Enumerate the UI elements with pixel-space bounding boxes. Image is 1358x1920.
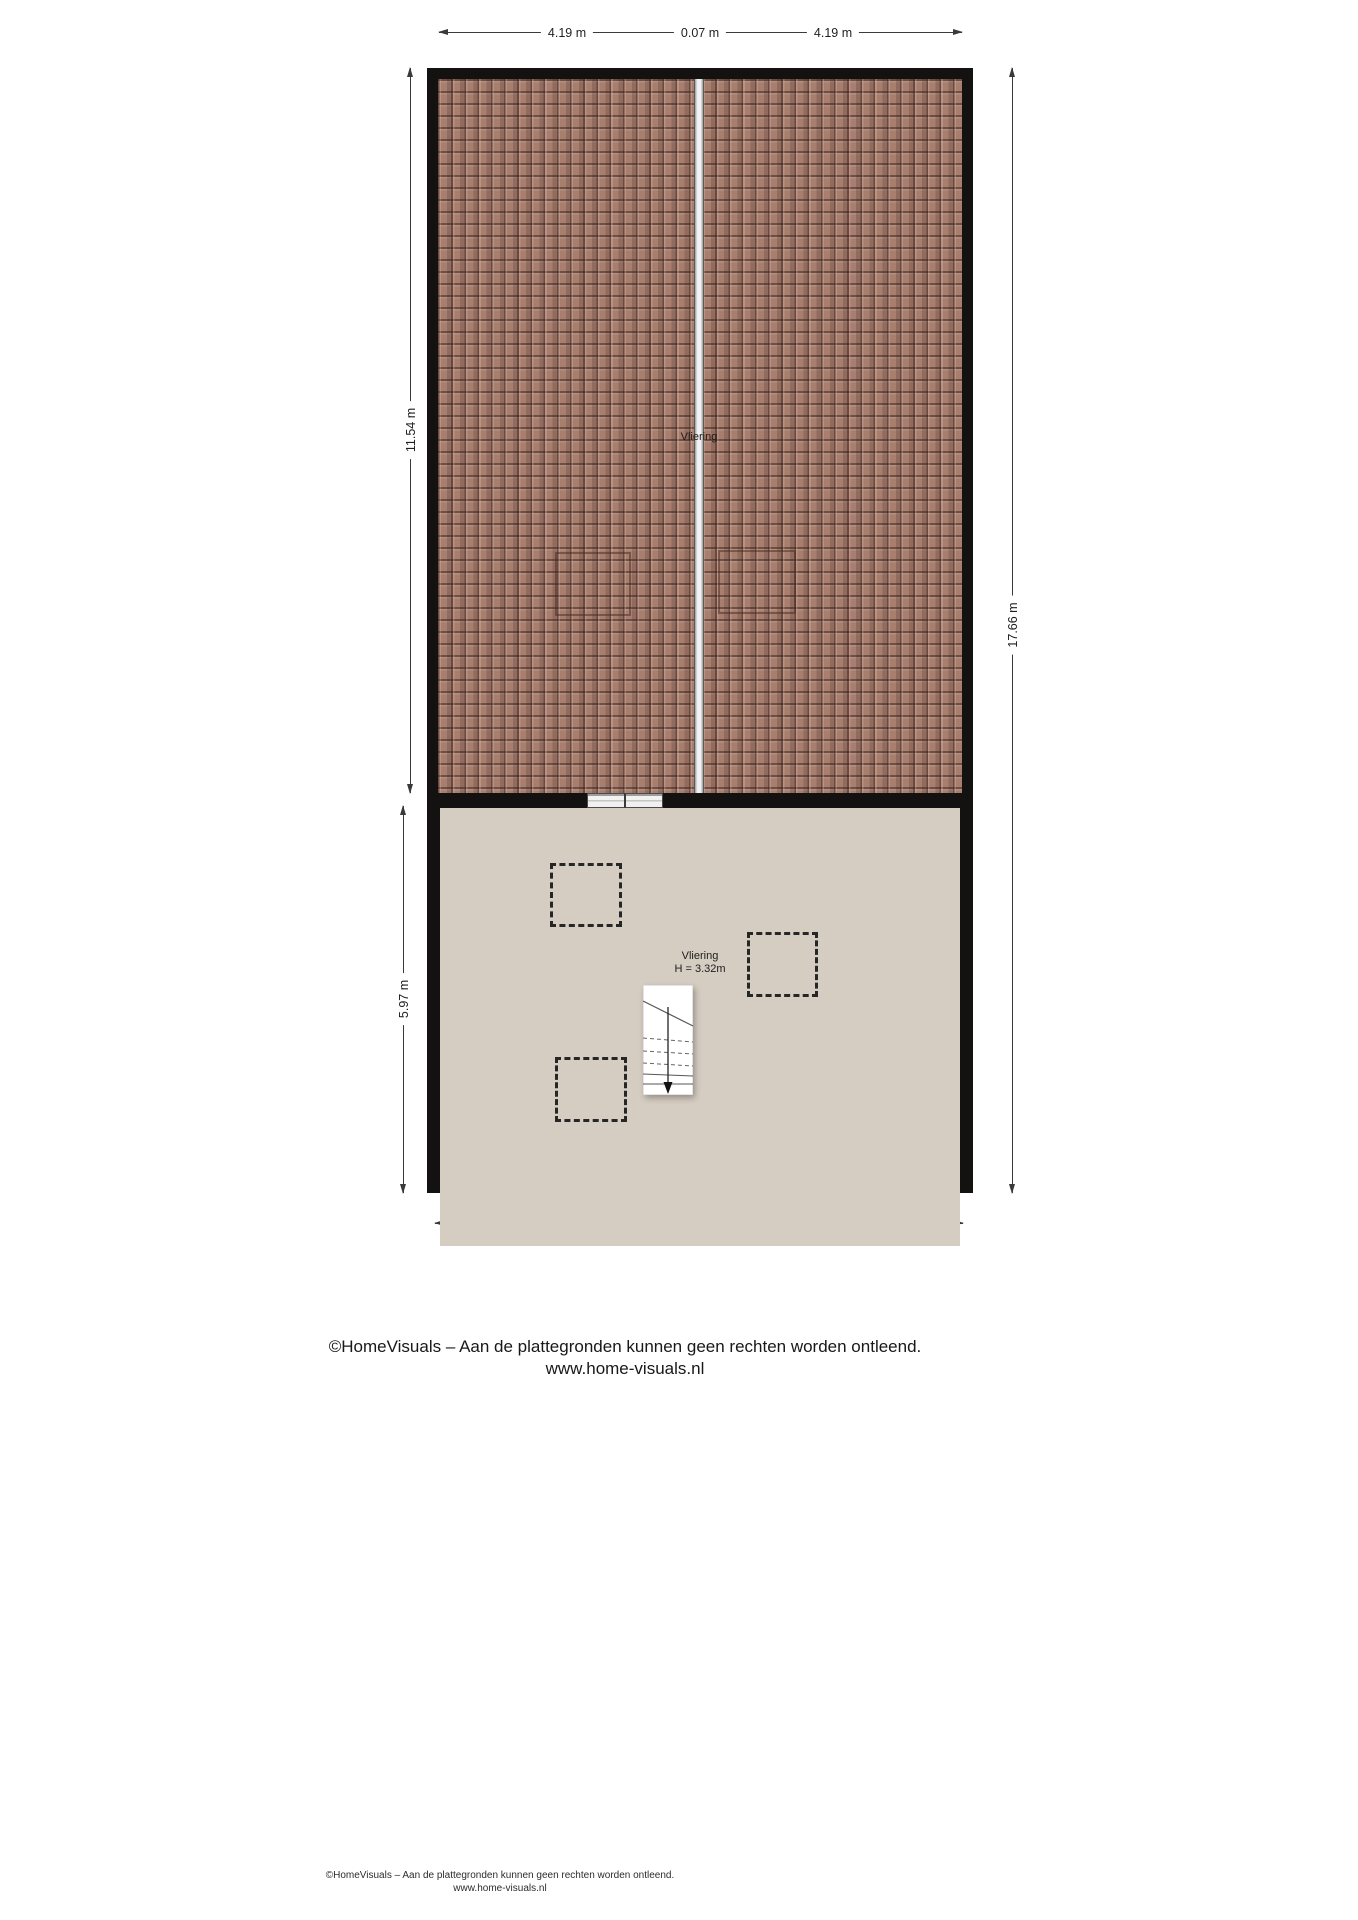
- dim-arrow-right-icon: [953, 29, 963, 35]
- dimension-label-right: 17.66 m: [1006, 595, 1020, 654]
- dimension-label-left-lower: 5.97 m: [397, 973, 411, 1025]
- dim-arrow-down-icon: [1009, 1184, 1015, 1194]
- floorplan-page: 4.19 m 0.07 m 4.19 m 11.54 m 5.97 m 17.6…: [0, 0, 1358, 1920]
- dimension-label-top-middle: 0.07 m: [674, 26, 726, 40]
- dim-arrow-left-icon: [438, 29, 448, 35]
- footnote-text: ©HomeVisuals – Aan de plattegronden kunn…: [326, 1869, 675, 1895]
- room-label-block: Vliering H = 3.32m: [674, 950, 725, 976]
- staircase-icon: [643, 985, 693, 1095]
- copyright-line2-url: www.home-visuals.nl: [329, 1358, 922, 1380]
- floorplan-outline: Vliering Vliering H = 3.32m: [427, 68, 973, 1193]
- dimension-label-top-left: 4.19 m: [541, 26, 593, 40]
- room-height-label: H = 3.32m: [674, 963, 725, 976]
- ceiling-opening-dashed-3: [555, 1057, 627, 1122]
- footnote-line1: ©HomeVisuals – Aan de plattegronden kunn…: [326, 1869, 675, 1882]
- dimension-label-top-right: 4.19 m: [807, 26, 859, 40]
- roof-window-outline-left: [555, 552, 631, 616]
- dim-arrow-up-icon: [400, 805, 406, 815]
- dimension-line-right: 17.66 m: [1012, 68, 1013, 1193]
- staircase-symbol: [643, 985, 693, 1095]
- dimension-line-left-lower: 5.97 m: [403, 806, 404, 1193]
- copyright-line1: ©HomeVisuals – Aan de plattegronden kunn…: [329, 1336, 922, 1358]
- copyright-text: ©HomeVisuals – Aan de plattegronden kunn…: [329, 1336, 922, 1380]
- dimension-line-left-upper: 11.54 m: [410, 68, 411, 793]
- footnote-line2-url: www.home-visuals.nl: [326, 1882, 675, 1895]
- dim-arrow-up-icon: [1009, 67, 1015, 77]
- roof-window-outline-right: [718, 550, 796, 614]
- ceiling-opening-dashed-1: [550, 863, 622, 927]
- dimension-label-left-upper: 11.54 m: [404, 401, 418, 459]
- roof-room-label: Vliering: [681, 431, 718, 443]
- dimension-line-top: 4.19 m 0.07 m 4.19 m: [439, 32, 962, 33]
- room-name-label: Vliering: [674, 950, 725, 963]
- ceiling-opening-dashed-2: [747, 932, 818, 997]
- dim-arrow-down-icon: [407, 784, 413, 794]
- dim-arrow-down-icon: [400, 1184, 406, 1194]
- dim-arrow-up-icon: [407, 67, 413, 77]
- attic-floor-area: [440, 808, 960, 1246]
